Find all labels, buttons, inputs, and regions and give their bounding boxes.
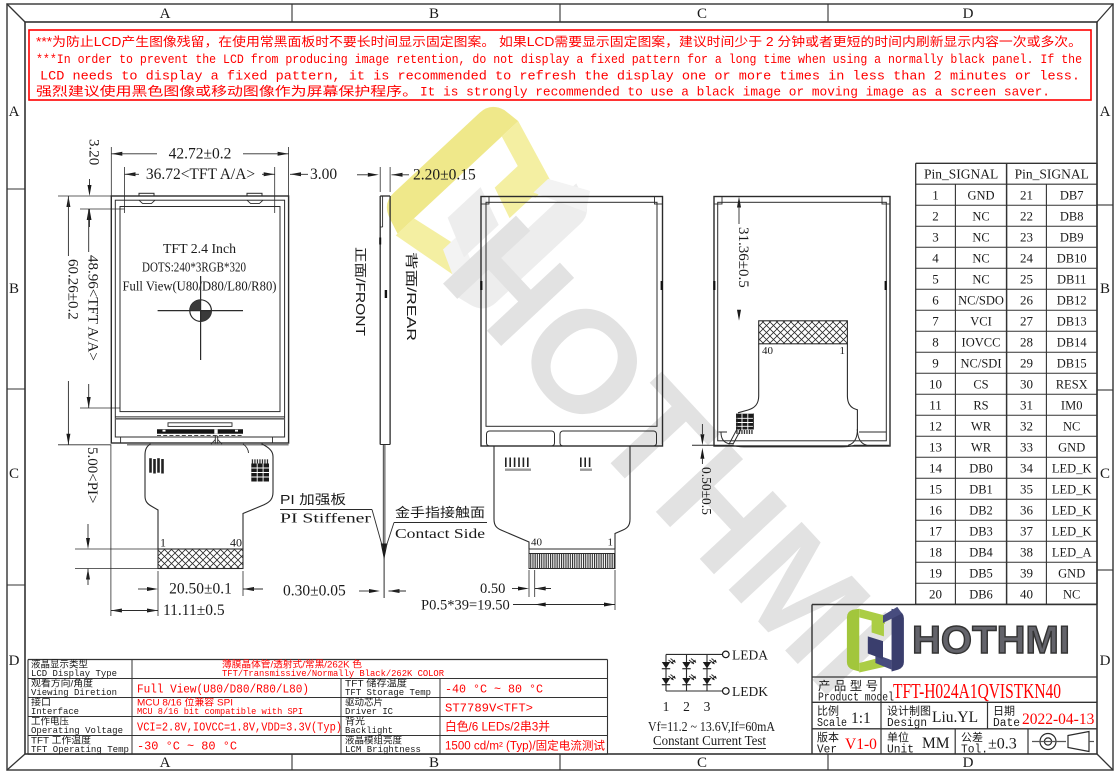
svg-text:A: A [160,6,171,22]
svg-text:IOVCC: IOVCC [962,336,1001,350]
svg-text:TFT/Transmissive/Normally Blac: TFT/Transmissive/Normally Black/262K COL… [222,669,445,679]
svg-text:40: 40 [531,537,543,549]
svg-text:Full View(U80/D80/L80/R80): Full View(U80/D80/L80/R80) [123,279,277,294]
svg-text:13: 13 [929,440,942,455]
svg-text:HOTHMI: HOTHMI [912,619,1070,662]
svg-text:4: 4 [932,251,939,266]
svg-text:LED_K: LED_K [1052,504,1092,518]
svg-text:D: D [1100,653,1111,669]
svg-text:10: 10 [929,377,942,392]
svg-text:19: 19 [929,566,942,581]
svg-text:DB9: DB9 [1060,231,1084,245]
svg-text:36.72<TFT A/A>: 36.72<TFT A/A> [146,166,255,183]
svg-text:2022-04-13: 2022-04-13 [1022,711,1095,728]
svg-text:DB8: DB8 [1060,210,1084,224]
svg-text:P0.5*39=19.50: P0.5*39=19.50 [421,597,510,613]
svg-text:35: 35 [1020,482,1033,497]
svg-text:17: 17 [929,524,943,539]
svg-text:DB14: DB14 [1057,336,1088,350]
svg-text:20.50±0.1: 20.50±0.1 [169,581,232,598]
svg-text:2: 2 [932,209,939,224]
svg-text:5.00<PI>: 5.00<PI> [84,447,100,504]
svg-text:V1-0: V1-0 [845,736,877,753]
svg-text:D: D [963,755,974,771]
svg-text:23: 23 [1020,230,1033,245]
svg-text:LEDA: LEDA [732,648,768,663]
svg-text:正面/FRONT: 正面/FRONT [353,247,367,336]
svg-text:TFT 2.4 Inch: TFT 2.4 Inch [163,241,236,256]
svg-text:11.11±0.5: 11.11±0.5 [163,602,225,619]
svg-text:40: 40 [230,536,242,550]
svg-text:B: B [429,755,439,771]
svg-text:NC: NC [972,252,989,266]
svg-text:日期: 日期 [993,705,1015,718]
svg-text:27: 27 [1020,314,1034,329]
svg-text:NC/SDI: NC/SDI [961,357,1002,371]
svg-text:Unit: Unit [887,744,914,757]
svg-text:Vf=11.2 ~ 13.6V,If=60mA: Vf=11.2 ~ 13.6V,If=60mA [648,719,775,734]
svg-text:1500 cd/m² (Typ)/固定电流测试: 1500 cd/m² (Typ)/固定电流测试 [445,739,605,753]
svg-text:38: 38 [1020,545,1033,560]
svg-text:D: D [963,6,974,22]
svg-text:Full View(U80/D80/R80/L80): Full View(U80/D80/R80/L80) [137,683,309,697]
svg-text:42.72±0.2: 42.72±0.2 [169,146,232,163]
svg-text:PI Stiffener: PI Stiffener [280,511,372,526]
svg-text:A: A [9,104,20,120]
svg-text:TFT Storage Temp: TFT Storage Temp [345,688,431,698]
svg-text:LCM Brightness: LCM Brightness [345,745,421,755]
svg-text:LCD Display Type: LCD Display Type [31,669,117,679]
svg-text:2: 2 [683,699,690,714]
svg-text:3: 3 [932,230,939,245]
svg-text:DB12: DB12 [1057,294,1087,308]
svg-text:WR: WR [971,441,992,455]
svg-text:RS: RS [973,399,988,413]
svg-text:背面/REAR: 背面/REAR [404,252,418,341]
svg-text:GND: GND [1058,567,1085,581]
svg-text:NC/SDO: NC/SDO [958,294,1004,308]
svg-text:A: A [160,755,171,771]
svg-text:C: C [697,6,707,22]
svg-text:26: 26 [1020,293,1034,308]
svg-text:3.00: 3.00 [310,166,337,183]
svg-text:C: C [9,466,19,482]
svg-text:29: 29 [1020,356,1033,371]
svg-text:31.36±0.5: 31.36±0.5 [735,227,751,288]
svg-text:C: C [697,755,707,771]
svg-text:DB0: DB0 [969,462,993,476]
svg-text:39: 39 [1020,566,1033,581]
svg-text:DB1: DB1 [969,483,993,497]
svg-text:MM: MM [922,735,950,752]
svg-text:-40 °C ~ 80 °C: -40 °C ~ 80 °C [445,683,543,697]
svg-text:A: A [1100,104,1111,120]
svg-text:22: 22 [1020,209,1033,224]
svg-text:Viewing Diretion: Viewing Diretion [31,688,117,698]
svg-text:37: 37 [1020,524,1034,539]
svg-text:Pin_SIGNAL: Pin_SIGNAL [1015,166,1089,181]
svg-text:-30 °C ~ 80 °C: -30 °C ~ 80 °C [137,740,237,754]
svg-text:GND: GND [967,189,994,203]
svg-text:***为防止LCD产生图像残留，在使用常黑面板时不要长时间显: ***为防止LCD产生图像残留，在使用常黑面板时不要长时间显示固定图案。 如果L… [36,34,1082,49]
svg-text:DB7: DB7 [1060,189,1084,203]
svg-text:32: 32 [1020,419,1033,434]
svg-text:DB15: DB15 [1057,357,1087,371]
svg-text:±0.3: ±0.3 [988,736,1017,753]
svg-text:40: 40 [762,345,774,357]
svg-text:NC: NC [972,231,989,245]
svg-text:1: 1 [663,699,670,714]
svg-text:Backlight: Backlight [345,726,393,736]
svg-text:6: 6 [932,293,939,308]
svg-text:VCI: VCI [970,315,992,329]
svg-text:DB3: DB3 [969,525,993,539]
svg-text:TFT Operating Temp: TFT Operating Temp [31,745,129,755]
svg-text:LED_K: LED_K [1052,483,1092,497]
svg-text:0.30±0.05: 0.30±0.05 [283,583,346,600]
svg-text:IM0: IM0 [1061,399,1083,413]
svg-text:Design: Design [887,717,927,730]
svg-text:Pin_SIGNAL: Pin_SIGNAL [924,166,998,181]
svg-text:36: 36 [1020,503,1034,518]
svg-text:48.96<TFT A/A>: 48.96<TFT A/A> [85,255,101,361]
svg-text:B: B [1100,281,1110,297]
svg-text:7: 7 [932,314,939,329]
svg-text:DB13: DB13 [1057,315,1087,329]
svg-text:白色/6 LEDs/2串3并: 白色/6 LEDs/2串3并 [445,719,550,734]
svg-text:B: B [9,281,19,297]
svg-text:12: 12 [929,419,942,434]
svg-text:强烈建议使用黑色图像或移动图像作为屏幕保护程序。: 强烈建议使用黑色图像或移动图像作为屏幕保护程序。 [36,84,418,99]
svg-text:***In order to prevent the LCD: ***In order to prevent the LCD from prod… [36,53,1082,67]
svg-text:20: 20 [929,587,942,602]
svg-text:DB4: DB4 [969,546,993,560]
svg-text:LED_K: LED_K [1052,462,1092,476]
svg-text:DB6: DB6 [969,588,993,602]
svg-text:NC: NC [1063,420,1080,434]
svg-text:16: 16 [929,503,943,518]
svg-text:5: 5 [932,272,939,287]
svg-text:Tol.: Tol. [961,744,988,757]
svg-text:TFT-H024A1QVISTKN40: TFT-H024A1QVISTKN40 [893,679,1061,703]
svg-text:11: 11 [929,398,942,413]
svg-text:版本: 版本 [817,730,839,744]
svg-text:GND: GND [1058,441,1085,455]
svg-text:Contact Side: Contact Side [395,526,485,541]
svg-text:Liu.YL: Liu.YL [932,709,978,726]
svg-text:D: D [9,653,20,669]
svg-text:PI 加强板: PI 加强板 [280,492,346,507]
svg-text:1: 1 [608,537,614,549]
svg-text:RESX: RESX [1056,378,1088,392]
svg-text:14: 14 [929,461,943,476]
svg-text:Date: Date [993,717,1020,730]
svg-text:33: 33 [1020,440,1033,455]
svg-text:1: 1 [840,345,846,357]
svg-text:CS: CS [973,378,988,392]
svg-text:DB5: DB5 [969,567,993,581]
svg-text:3: 3 [704,699,711,714]
svg-text:1: 1 [932,188,939,203]
svg-text:15: 15 [929,482,942,497]
svg-text:比例: 比例 [817,704,839,718]
svg-text:单位: 单位 [887,730,909,744]
svg-text:0.50: 0.50 [480,581,505,597]
svg-text:B: B [429,6,439,22]
svg-text:MCU 8/16 bit compatible with S: MCU 8/16 bit compatible with SPI [137,707,303,717]
svg-text:NC: NC [972,210,989,224]
svg-text:Operating Voltage: Operating Voltage [31,726,123,736]
svg-text:3.20: 3.20 [86,139,102,165]
svg-text:WR: WR [971,420,992,434]
svg-text:C: C [1100,466,1110,482]
svg-text:40: 40 [1020,587,1033,602]
svg-text:30: 30 [1020,377,1033,392]
svg-text:31: 31 [1020,398,1033,413]
svg-text:It is strongly recommended to: It is strongly recommended to use a blac… [420,86,1050,100]
svg-text:0.50±0.5: 0.50±0.5 [699,467,714,515]
svg-text:LEDK: LEDK [732,684,768,699]
svg-text:NC: NC [1063,588,1080,602]
svg-text:60.26±0.2: 60.26±0.2 [64,259,80,320]
svg-text:25: 25 [1020,272,1033,287]
svg-text:18: 18 [929,545,942,560]
svg-text:8: 8 [932,335,939,350]
svg-text:24: 24 [1020,251,1034,266]
svg-text:LED_K: LED_K [1052,525,1092,539]
svg-text:NC: NC [972,273,989,287]
svg-text:Interface: Interface [31,707,79,717]
svg-text:21: 21 [1020,188,1033,203]
svg-text:LED_A: LED_A [1052,546,1092,560]
svg-text:Ver: Ver [817,744,837,757]
svg-text:ST7789V<TFT>: ST7789V<TFT> [445,702,533,716]
svg-text:DB10: DB10 [1057,252,1087,266]
svg-text:LCD needs to display a fixed p: LCD needs to display a fixed pattern, it… [40,70,1080,84]
svg-text:2.20±0.15: 2.20±0.15 [413,167,476,184]
svg-text:34: 34 [1020,461,1034,476]
svg-text:DB2: DB2 [969,504,993,518]
svg-text:1:1: 1:1 [851,710,871,727]
svg-text:Product model: Product model [818,692,894,705]
svg-text:Constant Current Test: Constant Current Test [653,733,766,748]
svg-text:金手指接触面: 金手指接触面 [395,505,485,520]
svg-text:Scale: Scale [817,717,847,730]
svg-text:设计制图: 设计制图 [887,705,931,718]
svg-text:28: 28 [1020,335,1033,350]
svg-text:VCI=2.8V,IOVCC=1.8V,VDD=3.3V(T: VCI=2.8V,IOVCC=1.8V,VDD=3.3V(Typ) [137,721,342,735]
svg-text:DB11: DB11 [1057,273,1086,287]
svg-text:1: 1 [160,536,166,550]
svg-text:DOTS:240*3RGB*320: DOTS:240*3RGB*320 [142,260,246,275]
svg-text:9: 9 [932,356,939,371]
svg-text:Driver IC: Driver IC [345,707,394,717]
svg-text:公差: 公差 [961,730,983,744]
